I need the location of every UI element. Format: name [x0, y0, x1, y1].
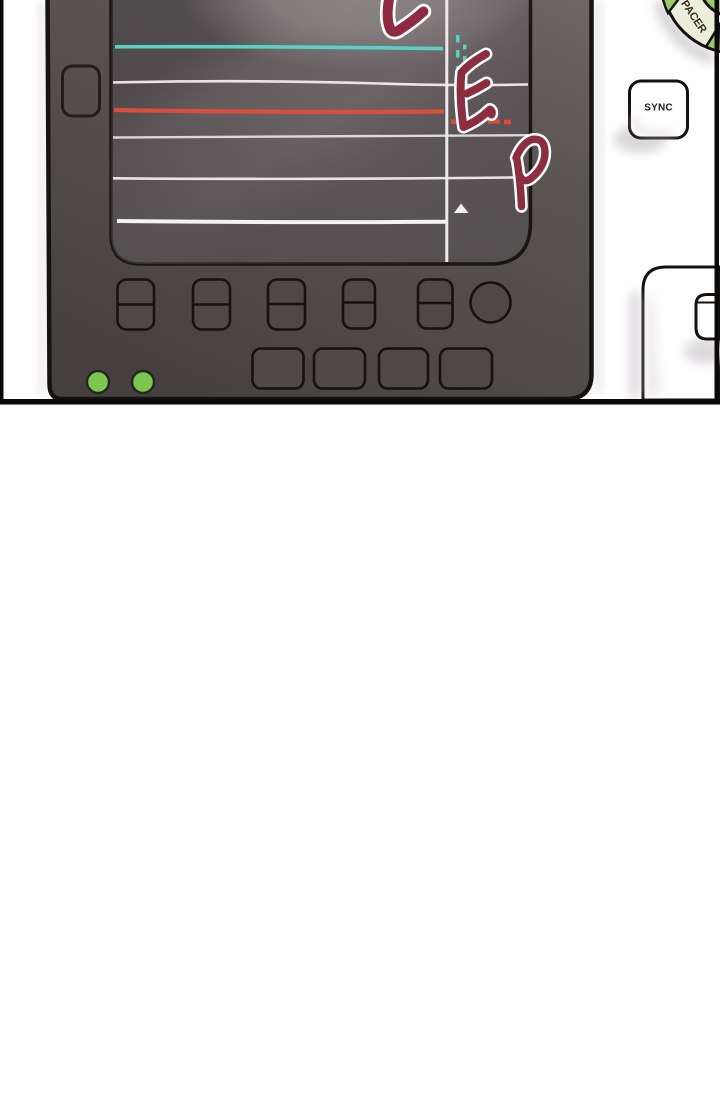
- svg-text:SYNC: SYNC: [644, 103, 673, 114]
